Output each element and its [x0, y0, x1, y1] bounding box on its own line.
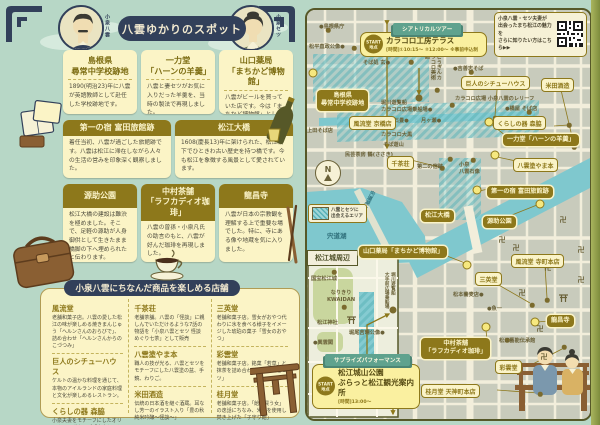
poi-marker — [545, 298, 550, 303]
store-name: 八雲塗やま本 — [134, 350, 205, 360]
spot-marker — [309, 69, 318, 78]
tour-map: 小泉八雲・セツ夫妻が 出会ったまち松江の魅力を さらに知りたい方はこちら▶▶ シ… — [305, 8, 592, 421]
map-spot-label: 山口薬局「まちかど博物館」 — [359, 246, 447, 258]
yakumo-portrait — [58, 5, 104, 51]
map-poi-label: カラコロ広場 小泉八雲のレリーフ — [455, 96, 534, 103]
spot-marker — [473, 186, 482, 195]
temple-symbol: 卍 — [519, 288, 526, 298]
map-poi-label: ●興雲閣 — [313, 340, 333, 347]
spot-card: 一力堂 「ハーンの羊羹」 八雲と妻セツがお気に入りだった羊羹を、当時の製法で再現… — [141, 50, 215, 114]
poi-marker — [409, 60, 414, 65]
qr-code — [557, 21, 583, 47]
map-poi-label: 小泉 八雲石像 — [459, 162, 480, 176]
tour-ribbon: サプライズパフォーマンス — [325, 354, 410, 366]
qr-note-box: 小泉八雲・セツ夫妻が 出会ったまち松江の魅力を さらに知りたい方はこちら▶▶ — [494, 12, 587, 57]
store-entry: 米田酒造 伝統の日本酒を継ぐ酒蔵。耳なし芳一のイラスト入り「豊の秋 純米吟醸〜怪… — [134, 387, 205, 425]
map-poi-label: 宍道湖 — [327, 232, 347, 241]
store-entry: 三英堂 老舗和菓子店。雪女がおやつ代わりに氷を食べる様子をイメージした琥珀の菓子… — [217, 301, 288, 347]
spot-marker — [463, 261, 472, 270]
map-poi-label: 月ヶ瀬● — [421, 118, 441, 125]
store-entry: 八雲塗やま本 職人の技が光る、八雲とセツをモチーフにした八雲塗の盆、手鏡、わりご… — [134, 347, 205, 386]
brush-pens-icon — [284, 204, 302, 266]
map-poi-label: ●橋屋 そば店 — [505, 106, 537, 113]
corner-ornament-icon — [5, 5, 43, 43]
spot-marker — [491, 151, 500, 160]
store-name: 彩雲堂 — [217, 350, 288, 360]
store-name: 風流堂 — [52, 304, 123, 314]
briefcase-icon — [10, 226, 78, 294]
spot-title: 龍昌寺 — [219, 184, 293, 208]
map-poi-label: ●魚一 — [487, 306, 502, 313]
poi-marker — [435, 88, 440, 93]
map-spot-label: 源助公園 — [483, 216, 516, 228]
map-poi-label: 松平直政公像● — [309, 44, 345, 51]
store-name: くらしの器 森脇 — [52, 407, 123, 417]
map-poi-label: ●吉善志そば — [453, 66, 483, 73]
spot-description: 1890(明治23)年に八雲が英語教師として赴任した学校跡地です。 — [63, 80, 137, 112]
brochure-page: 小泉八雲 小泉セツ 八雲ゆかりのスポット 島根県 尋常中学校跡地 1890(明治… — [0, 0, 600, 425]
map-poi-label: ●島根県庁 — [319, 24, 344, 31]
map-store-label: 彩雲堂 — [495, 360, 522, 374]
poi-marker — [448, 157, 453, 162]
store-entry: 千茶荘 老舗茶舗。八雲の「怪談」に親しんでいただけるような7話の物語を「小泉八雲… — [134, 301, 205, 347]
start-point-badge: START 地点 — [316, 377, 335, 396]
coffee-cup-icon — [148, 248, 188, 282]
map-store-label: 巨人のシチューハウス — [461, 76, 530, 90]
map-poi-label: 松江神社 — [317, 320, 338, 327]
poi-marker — [342, 305, 347, 310]
temple-symbol: 卍 — [578, 275, 585, 285]
store-description: ケルトの温かな料理を通じて、本物のアイルランドの家庭料理と文化が楽しめるレストラ… — [52, 378, 123, 399]
temple-symbol: 卍 — [513, 243, 520, 253]
store-description: 小泉夫妻をモチーフにしたオリジナルマグカップ「小泉セツとラフカディオ・ハーン」 — [52, 418, 123, 425]
store-description: 伝統の日本酒を継ぐ酒蔵。耳なし芳一のイラスト入り「豊の秋 純米吟醸〜怪談〜」 — [134, 401, 205, 422]
spot-marker — [482, 323, 491, 332]
qr-note-text: 小泉八雲・セツ夫妻が 出会ったまち松江の魅力を さらに知りたい方はこちら▶▶ — [498, 16, 554, 53]
store-entry: 巨人のシチューハウス ケルトの温かな料理を通じて、本物のアイルランドの家庭料理と… — [52, 354, 123, 403]
poi-marker — [450, 103, 455, 108]
map-poi-label: 国宝松江城 — [311, 276, 337, 283]
map-poi-label: 松江藝能伝承館 — [499, 338, 535, 345]
temple-symbol: 卍 — [499, 235, 506, 245]
store-description: 老舗和菓子店。雪女がおやつ代わりに氷を食べる様子をイメージした琥珀の菓子「雪女の… — [217, 315, 288, 343]
spot-title: 山口薬局 「まちかど博物館」 — [224, 50, 288, 91]
poi-marker — [538, 392, 543, 397]
map-poi-label: そば遊山 — [383, 142, 404, 149]
tour-time: [時間]①10:15〜 ②12:00〜 ※事前申込制 — [386, 47, 482, 53]
map-spot-label: 龍昌寺 — [547, 315, 574, 327]
start-point-badge: START 地点 — [364, 35, 383, 54]
spot-title: 島根県 尋常中学校跡地 — [68, 50, 132, 80]
map-poi-label: 第二の宿跡 — [417, 164, 443, 171]
tour-start-name: カラコロ工房テラス — [386, 36, 482, 46]
store-description: 老舗茶舗。八雲の「怪談」に親しんでいただけるような7話の物語を「小泉八雲とセツ … — [134, 315, 205, 343]
map-poi-label: なりきり KWAIDAN — [327, 290, 355, 304]
map-spot-label: 一力堂「ハーンの羊羹」 — [503, 134, 579, 146]
map-poi-label: カラコロ大黒 — [381, 132, 412, 139]
temple-symbol: 卍 — [560, 215, 567, 225]
map-poi-label: 堀尾吉晴公像● — [349, 330, 385, 337]
page-title: 八雲ゆかりのスポット — [118, 16, 246, 41]
store-description: 職人の技が光る、八雲とセツをモチーフにした八雲塗の盆、手鏡、わりご。 — [134, 361, 205, 382]
temple-symbol: 卍 — [541, 352, 548, 362]
map-poi-label: そば処 玄● — [363, 60, 390, 67]
map-spot-label: 中村茶舗 「ラフカディオ珈琲」 — [421, 338, 490, 359]
store-entry: くらしの器 森脇 小泉夫妻をモチーフにしたオリジナルマグカップ「小泉セツとラフカ… — [52, 404, 123, 425]
map-store-label: 風流堂 京橋店 — [349, 116, 396, 130]
beer-bottle-icon — [266, 95, 302, 147]
store-name: 三英堂 — [217, 304, 288, 314]
store-name: 米田酒造 — [134, 390, 205, 400]
map-spot-label: 松江大橋 — [421, 210, 454, 222]
spot-title: 一力堂 「ハーンの羊羹」 — [146, 50, 210, 80]
legend-hatch-swatch — [312, 207, 329, 220]
poi-marker — [567, 123, 572, 128]
poi-marker — [562, 345, 567, 350]
yakumo-portrait-label: 小泉八雲 — [104, 14, 111, 38]
poi-marker — [332, 270, 337, 275]
map-store-label: 八雲塗やま本 — [513, 158, 558, 172]
map-poi-label: 堀川遊覧船 カラコロ広場乗船場● — [381, 100, 432, 114]
spot-marker — [536, 200, 545, 209]
map-poi-label: 上田そば店 — [307, 128, 333, 135]
compass-icon: N — [315, 160, 341, 186]
map-store-label: くらしの器 森脇 — [493, 116, 546, 130]
inset-map-title: 松江城周辺 — [307, 250, 358, 266]
map-poi-label: 松本蕎麦店● — [453, 292, 483, 299]
spot-description: 八雲が日本の宗教観を理解する上で重要な場でした。特に、寺にある像や地蔵を気に入り… — [219, 208, 293, 257]
spot-title: 第一の宿 富田旅館跡 — [63, 120, 171, 136]
stores-column: 千茶荘 老舗茶舗。八雲の「怪談」に親しんでいただけるような7話の物語を「小泉八雲… — [128, 299, 210, 413]
map-store-label: 桂月堂 天神町本店 — [421, 384, 480, 398]
map-store-label: 三英堂 — [475, 272, 502, 286]
tour-ribbon: シアトリカルツアー — [393, 23, 461, 35]
books-icon — [18, 100, 66, 152]
temple-symbol: 卍 — [578, 245, 585, 255]
torii-gate-icon — [250, 360, 302, 416]
map-store-label: 米田酒造 — [541, 78, 574, 92]
map-store-label: 千茶荘 — [387, 156, 414, 170]
store-name: 巨人のシチューハウス — [52, 357, 123, 377]
map-store-label: 風流堂 寺町本店 — [511, 254, 564, 268]
store-name: 千茶荘 — [134, 304, 205, 314]
map-spot-label: 第一の宿 富田旅館跡 — [487, 186, 553, 198]
poi-marker — [352, 46, 357, 51]
tour-start-name: 松江城山公園 ぶらっと松江観光案内所 — [338, 368, 415, 398]
spot-card: 島根県 尋常中学校跡地 1890(明治23)年に八雲が英語教師として赴任した学校… — [63, 50, 137, 114]
store-entry: 風流堂 老舗和菓子店。八雲の愛した松江の味が楽しめる焼きまんじゅう「ヘルンさんの… — [52, 301, 123, 354]
legend-text: 八雲とセツに 出会えるエリア — [331, 208, 363, 220]
spot-card: 第一の宿 富田旅館跡 着任当初、八雲が過ごした旅館跡です。八雲は松江に滞在しなが… — [63, 120, 171, 178]
poi-marker — [530, 303, 535, 308]
tour-time: [時間]13:00〜 — [338, 399, 415, 405]
map-poi-label: 堀川遊覧船 大手前広場乗船場 — [383, 272, 395, 324]
stores-section-title: 小泉八雲にちなんだ商品を楽しめる店舗 — [64, 280, 240, 296]
compass-arrow — [324, 174, 332, 181]
stores-column: 風流堂 老舗和菓子店。八雲の愛した松江の味が楽しめる焼きまんじゅう「ヘルンさんの… — [47, 299, 128, 413]
spot-card: 龍昌寺 八雲が日本の宗教観を理解する上で重要な場でした。特に、寺にある像や地蔵を… — [219, 184, 293, 262]
temple-symbol: 卍 — [537, 324, 544, 334]
map-poi-label: 民芸茶房 鶴(ささき) — [345, 152, 393, 159]
page-fold-edge — [591, 0, 600, 425]
spot-title: 源助公園 — [63, 184, 137, 208]
spot-description: 着任当初、八雲が過ごした旅館跡です。八雲は松江に滞在しながら人々の生活の営みを印… — [63, 136, 171, 177]
setsu-portrait-label: 小泉セツ — [275, 14, 282, 38]
tour-start-card: START 地点 松江城山公園 ぶらっと松江観光案内所 [時間]13:00〜 — [312, 364, 420, 409]
spot-description: 八雲と妻セツがお気に入りだった羊羹を、当時の製法で再現しました。 — [141, 80, 215, 114]
map-spot-label: 島根県 尋常中学校跡地 — [317, 90, 368, 111]
compass-north-label: N — [325, 166, 332, 174]
map-poi-label: ごうぎんカラコロ美術館 — [423, 54, 441, 82]
tour-start-card: START 地点 カラコロ工房テラス [時間]①10:15〜 ②12:00〜 ※… — [360, 32, 487, 57]
spot-title: 中村茶舗 「ラフカディオ珈琲」 — [141, 184, 215, 221]
map-legend: 八雲とセツに 出会えるエリア — [308, 204, 367, 223]
store-description: 老舗和菓子店。八雲の愛した松江の味が楽しめる焼きまんじゅう「ヘルンさんのおらびで… — [52, 315, 123, 350]
